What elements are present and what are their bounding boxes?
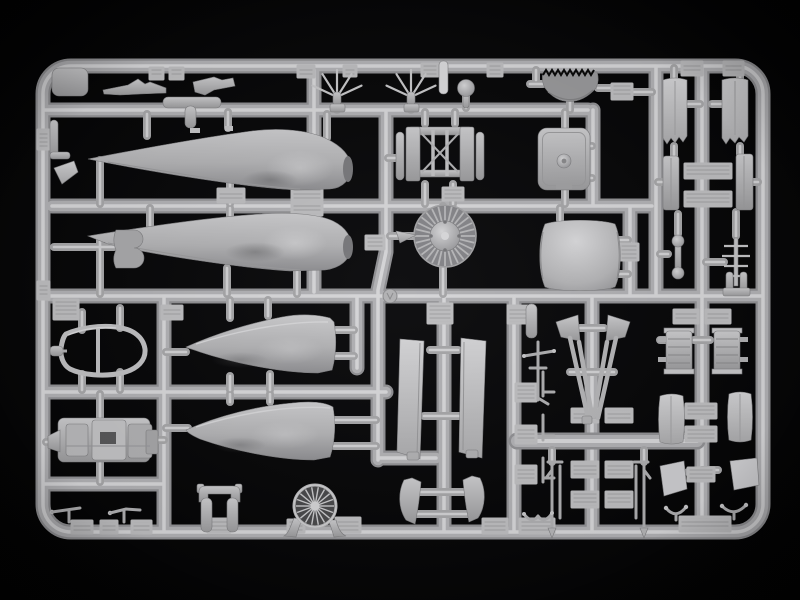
sprue-photo-canvas: Plastic model kit sprue: [0, 0, 800, 600]
sprue-photo: Plastic model kit sprue: [0, 0, 800, 600]
vignette-overlay: [0, 0, 800, 600]
